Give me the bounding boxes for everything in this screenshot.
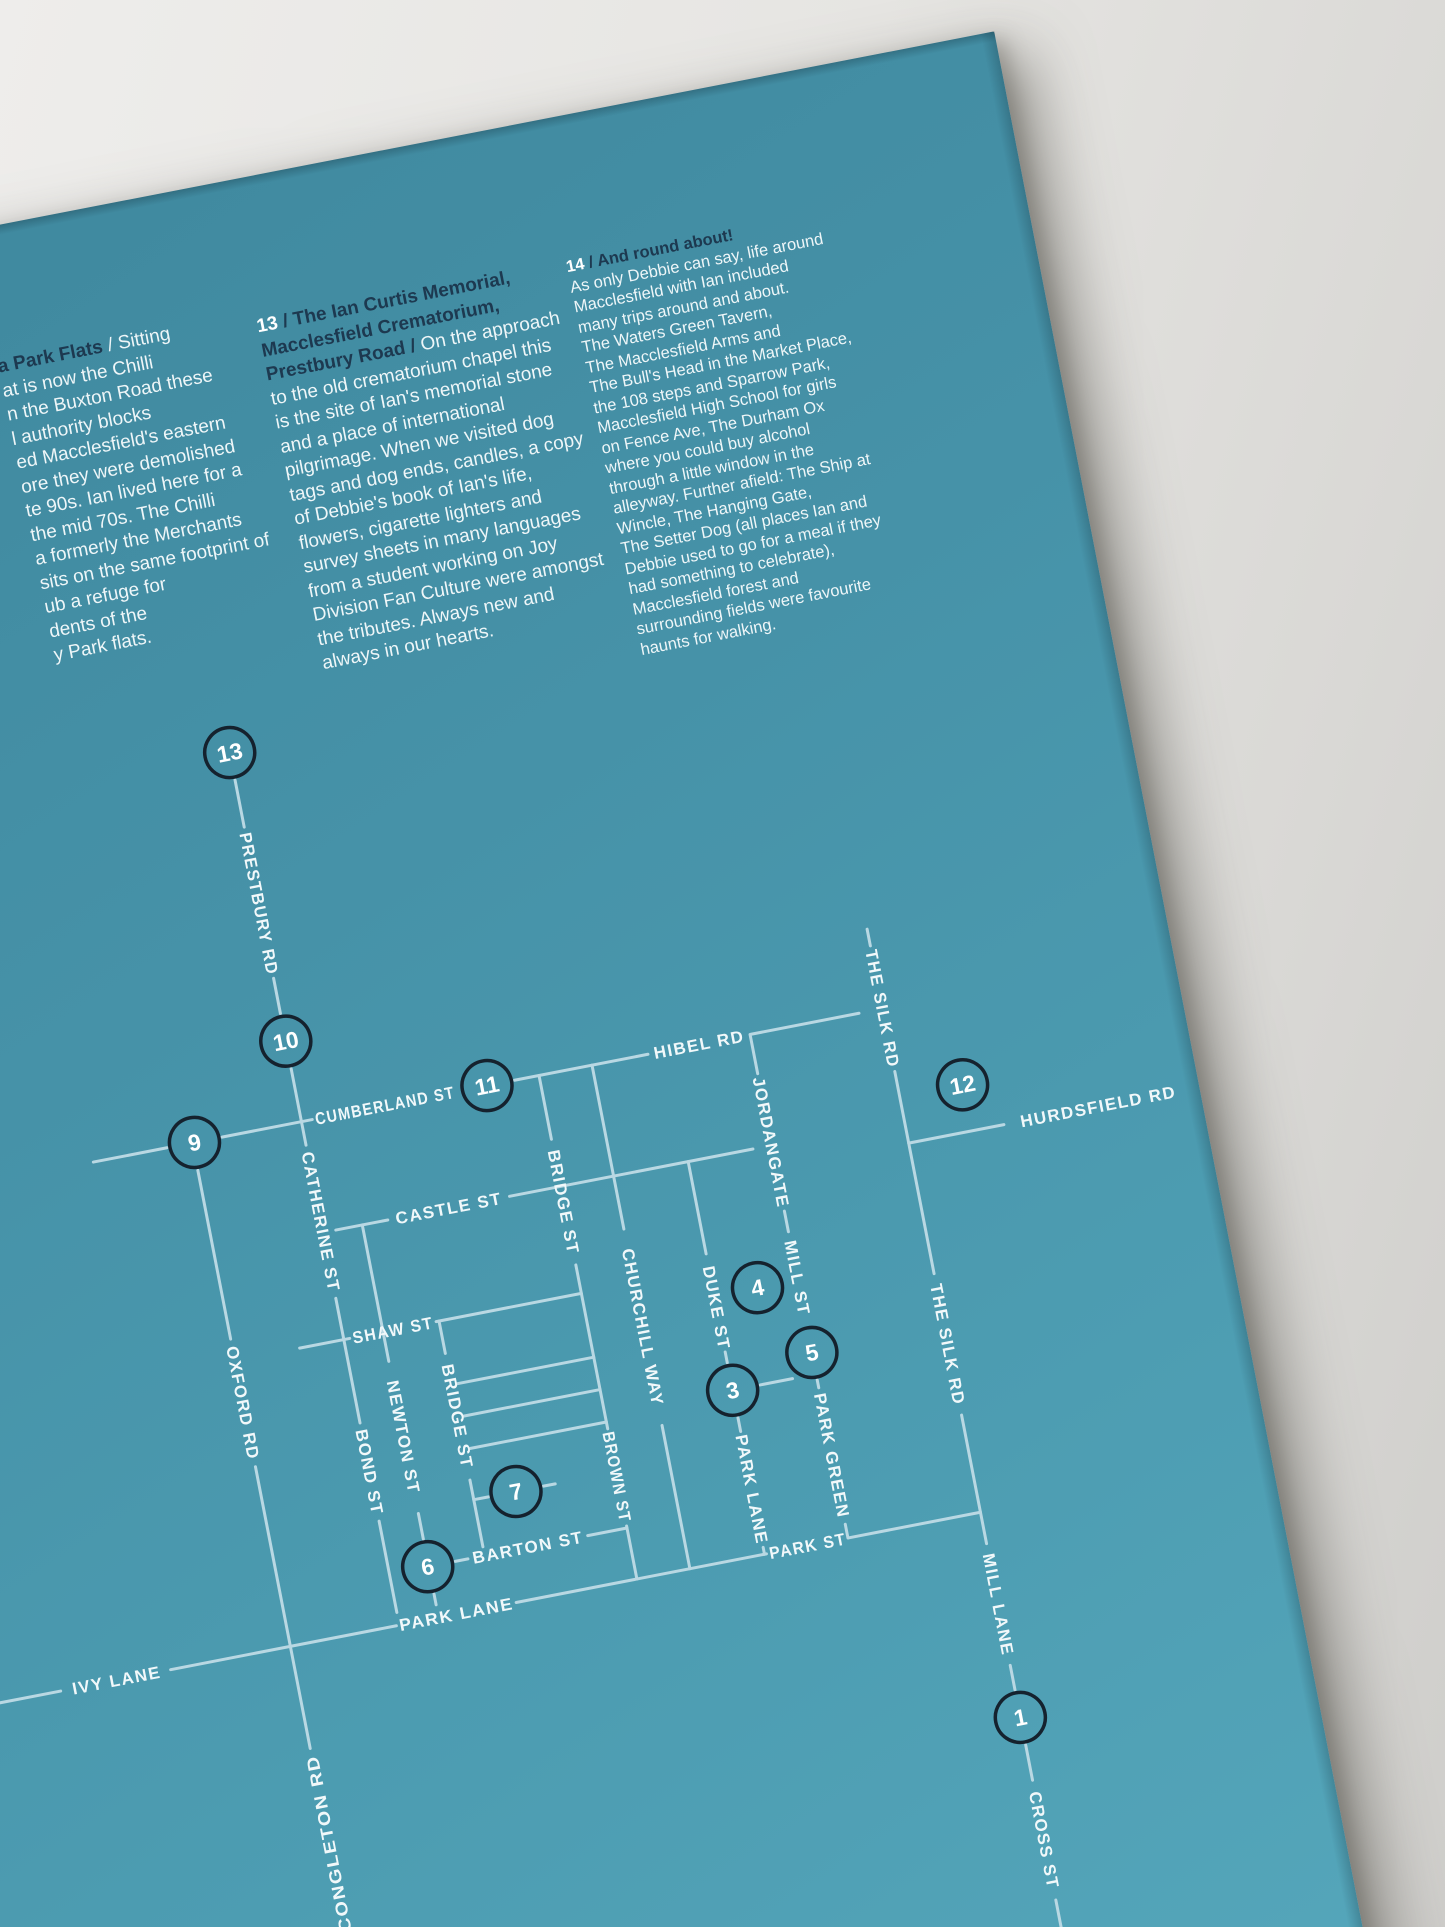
street-label-park-lane-vertical: PARK LANE xyxy=(731,1433,771,1546)
svg-text:9: 9 xyxy=(186,1128,204,1156)
numbered-markers: 13 10 9 11 12 4 3 5 7 6 1 xyxy=(93,598,1112,1880)
street-label-the-silk-rd-north: THE SILK RD xyxy=(861,948,903,1069)
street-label-oxford-rd: OXFORD RD xyxy=(222,1345,263,1462)
road-lines xyxy=(0,649,1170,1927)
street-label-hibel-rd: HIBEL RD xyxy=(652,1027,746,1063)
svg-text:5: 5 xyxy=(803,1338,821,1366)
marker-6: 6 xyxy=(398,1537,457,1596)
street-label-mill-st: MILL ST xyxy=(780,1239,813,1318)
street-label-cumberland-st: CUMBERLAND ST xyxy=(313,1083,456,1129)
street-label-hurdsfield-rd: HURDSFIELD RD xyxy=(1019,1082,1178,1131)
street-label-brown-st: BROWN ST xyxy=(598,1430,634,1524)
street-label-park-st: PARK ST xyxy=(768,1530,848,1564)
street-label-prestbury-rd: PRESTBURY RD xyxy=(235,831,281,977)
street-label-congleton-rd: CONGLETON RD xyxy=(303,1753,356,1927)
street-label-bond-st: BOND ST xyxy=(351,1428,386,1517)
street-label-churchill-way: CHURCHILL WAY xyxy=(618,1247,667,1408)
marker-12: 12 xyxy=(933,1055,992,1114)
street-label-cross-st: CROSS ST xyxy=(1025,1790,1063,1891)
marker-11: 11 xyxy=(458,1056,517,1115)
teal-map-poster: a Park Flats / Sitting at is now the Chi… xyxy=(0,31,1433,1927)
svg-text:6: 6 xyxy=(419,1553,437,1581)
street-label-castle-st: CASTLE ST xyxy=(394,1189,504,1228)
svg-text:12: 12 xyxy=(948,1070,978,1100)
marker-7: 7 xyxy=(487,1462,546,1521)
street-label-the-silk-rd-south: THE SILK RD xyxy=(926,1282,968,1407)
street-label-shaw-st: SHAW ST xyxy=(351,1313,435,1347)
marker-1: 1 xyxy=(991,1688,1050,1747)
street-label-ivy-lane: IVY LANE xyxy=(71,1663,163,1699)
marker-10: 10 xyxy=(256,1012,315,1071)
marker-3: 3 xyxy=(703,1361,762,1420)
street-label-duke-st: DUKE ST xyxy=(699,1264,734,1351)
street-label-park-green: PARK GREEN xyxy=(810,1391,853,1519)
photo-of-map-poster: a Park Flats / Sitting at is now the Chi… xyxy=(0,0,1445,1927)
street-label-park-lane-horizontal: PARK LANE xyxy=(398,1594,515,1635)
street-label-bridge-st-upper: BRIDGE ST xyxy=(544,1148,583,1256)
street-map: PRESTBURY RD CATHERINE ST BOND ST OXFORD… xyxy=(0,31,1433,1927)
street-labels: PRESTBURY RD CATHERINE ST BOND ST OXFORD… xyxy=(0,668,1321,1927)
marker-4: 4 xyxy=(728,1258,787,1317)
street-label-jordangate: JORDANGATE xyxy=(749,1076,793,1210)
svg-text:4: 4 xyxy=(749,1274,767,1302)
street-label-bridge-st-lower: BRIDGE ST xyxy=(438,1362,477,1470)
street-label-barton-st: BARTON ST xyxy=(471,1528,585,1568)
marker-5: 5 xyxy=(783,1323,842,1382)
svg-text:11: 11 xyxy=(473,1070,502,1100)
svg-text:13: 13 xyxy=(215,737,245,767)
svg-text:7: 7 xyxy=(507,1478,525,1506)
street-label-newton-st: NEWTON ST xyxy=(383,1379,424,1496)
street-label-mill-lane: MILL LANE xyxy=(979,1552,1017,1658)
svg-text:1: 1 xyxy=(1012,1703,1030,1731)
marker-13: 13 xyxy=(200,723,259,782)
svg-text:10: 10 xyxy=(271,1026,301,1056)
marker-9: 9 xyxy=(165,1113,224,1172)
svg-text:3: 3 xyxy=(724,1376,742,1404)
street-label-catherine-st: CATHERINE ST xyxy=(298,1150,344,1293)
